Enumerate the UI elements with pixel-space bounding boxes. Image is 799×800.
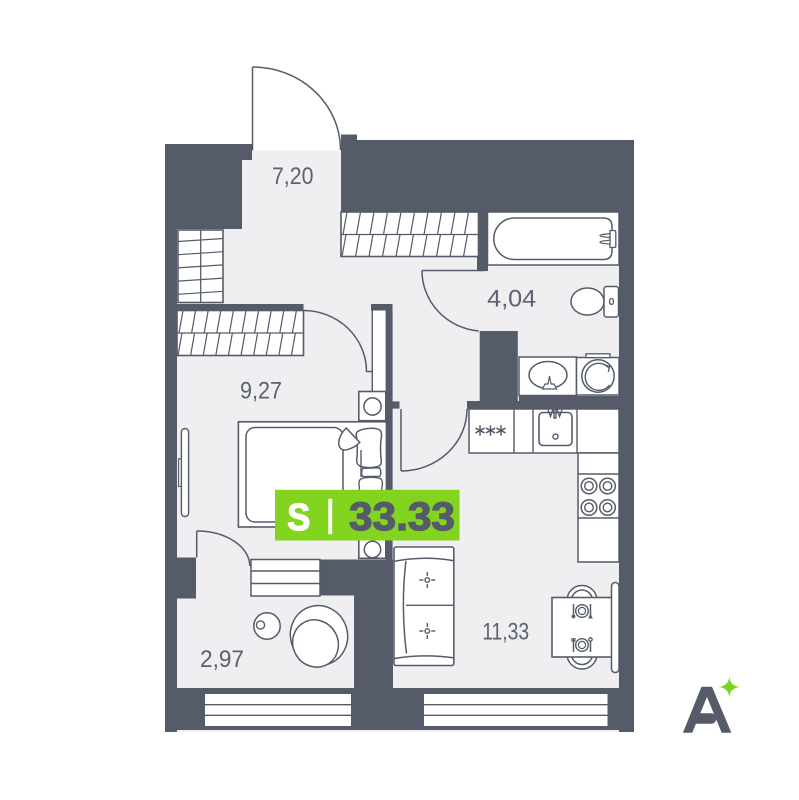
svg-text:9,27: 9,27 (240, 378, 282, 405)
svg-text:11,33: 11,33 (482, 619, 529, 646)
svg-text:7,20: 7,20 (272, 163, 314, 190)
svg-text:33.33: 33.33 (349, 495, 455, 539)
svg-text:2,97: 2,97 (200, 646, 244, 673)
svg-text:4,04: 4,04 (487, 286, 536, 313)
svg-text:S: S (287, 497, 310, 539)
